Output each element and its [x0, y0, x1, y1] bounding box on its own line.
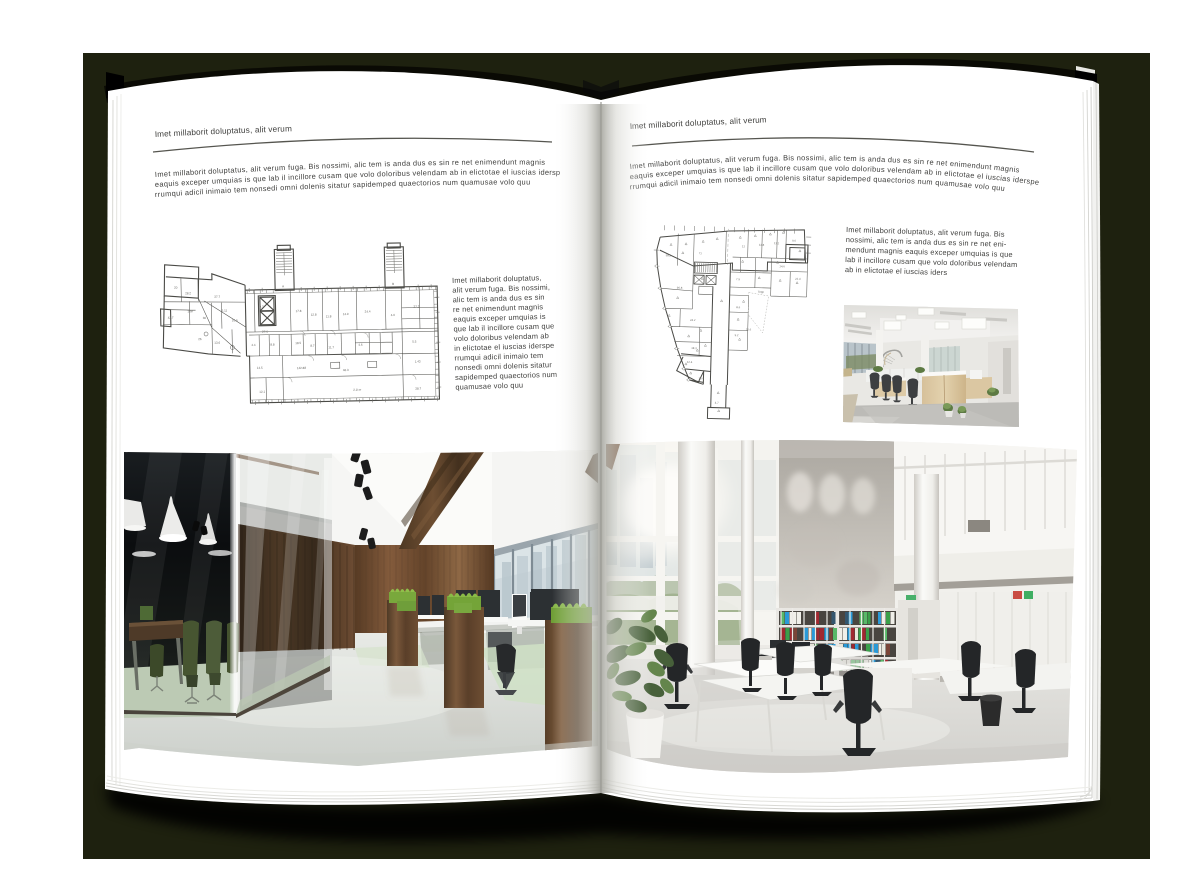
svg-text:5.5: 5.5	[412, 340, 417, 344]
svg-text:28.2: 28.2	[185, 291, 191, 295]
svg-text:2.7: 2.7	[259, 305, 264, 309]
svg-text:38.2: 38.2	[666, 253, 672, 257]
svg-text:9.6: 9.6	[792, 239, 796, 243]
svg-text:9.2: 9.2	[735, 333, 739, 337]
svg-text:11.2: 11.2	[774, 241, 780, 245]
svg-text:37.7: 37.7	[214, 295, 220, 299]
svg-text:14.9: 14.9	[343, 312, 349, 316]
svg-text:1.43: 1.43	[415, 359, 421, 363]
svg-text:22.4: 22.4	[795, 277, 801, 281]
svg-text:12.4: 12.4	[687, 360, 693, 364]
svg-text:96.8: 96.8	[677, 286, 683, 290]
svg-text:14.6: 14.6	[779, 264, 785, 268]
svg-text:11.7: 11.7	[328, 345, 334, 349]
svg-text:16.6: 16.6	[698, 376, 704, 380]
svg-text:18.5: 18.5	[295, 341, 301, 345]
svg-text:4.4: 4.4	[251, 343, 256, 347]
svg-text:12.8: 12.8	[311, 313, 317, 317]
svg-text:38.7: 38.7	[415, 386, 421, 390]
svg-text:142.88: 142.88	[297, 366, 307, 370]
svg-text:12: 12	[742, 244, 746, 248]
svg-text:208: 208	[188, 309, 193, 313]
svg-text:17.8: 17.8	[296, 309, 302, 313]
svg-text:43.7: 43.7	[168, 316, 174, 320]
svg-text:A: A	[282, 284, 284, 288]
svg-text:71: 71	[699, 251, 703, 255]
svg-text:11.8: 11.8	[759, 243, 765, 247]
svg-text:4.6: 4.6	[358, 343, 363, 347]
svg-text:Терр: Терр	[758, 290, 765, 294]
svg-text:25.6: 25.6	[746, 327, 752, 331]
svg-text:8.6: 8.6	[736, 305, 740, 309]
svg-text:8.7: 8.7	[310, 344, 315, 348]
svg-text:18.3: 18.3	[691, 346, 697, 350]
svg-text:27.6: 27.6	[262, 330, 268, 334]
svg-text:4.7: 4.7	[715, 401, 719, 405]
svg-text:24.2: 24.2	[690, 318, 696, 322]
svg-text:46.3: 46.3	[343, 368, 349, 372]
svg-text:8.8: 8.8	[270, 343, 275, 347]
svg-text:7.9: 7.9	[736, 277, 740, 281]
svg-text:37.2: 37.2	[413, 304, 419, 308]
svg-text:30: 30	[203, 316, 207, 320]
svg-text:11.8: 11.8	[326, 314, 332, 318]
svg-text:24.4: 24.4	[365, 310, 371, 314]
svg-text:10.6: 10.6	[232, 318, 238, 322]
svg-text:5.11: 5.11	[222, 309, 228, 313]
svg-text:4.0: 4.0	[391, 313, 396, 317]
svg-text:13.6: 13.6	[214, 341, 220, 345]
svg-text:26: 26	[198, 337, 202, 341]
svg-text:20: 20	[174, 286, 178, 290]
svg-text:14.5: 14.5	[257, 366, 263, 370]
svg-text:12.1: 12.1	[259, 390, 265, 394]
svg-text:B: B	[392, 282, 394, 286]
svg-text:2-й эт: 2-й эт	[353, 388, 362, 392]
